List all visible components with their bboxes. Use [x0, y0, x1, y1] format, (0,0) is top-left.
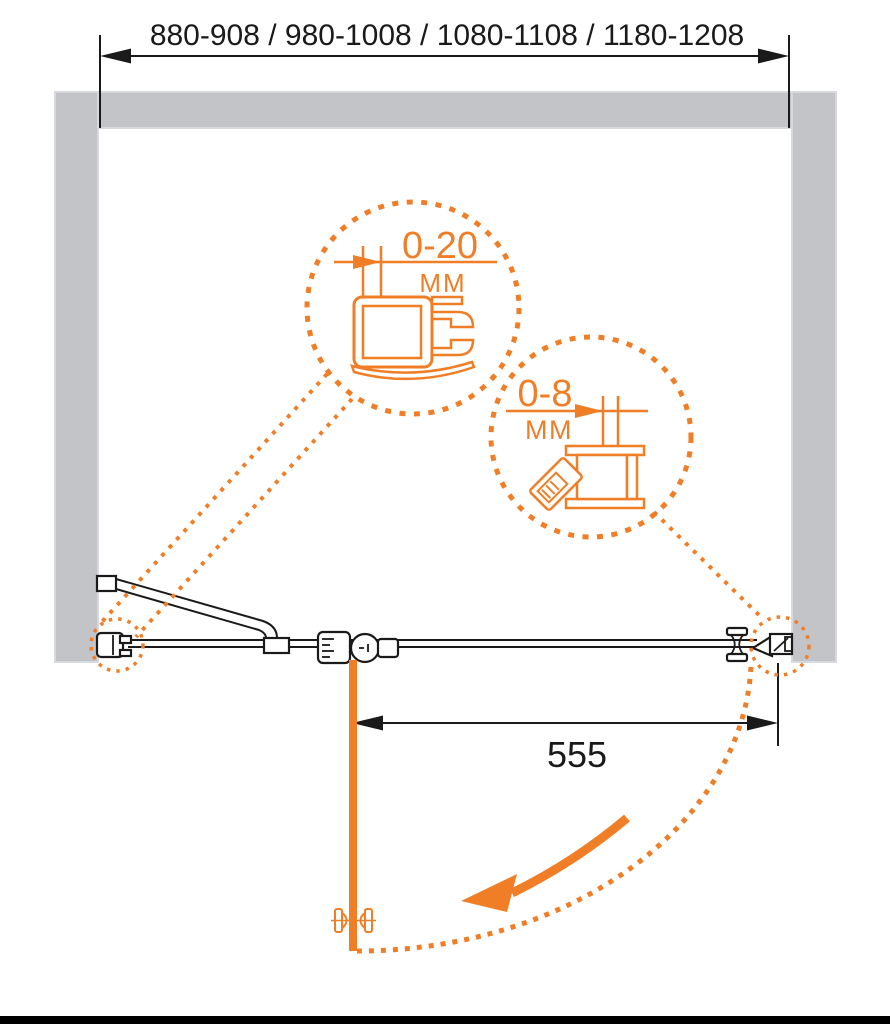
- door-open-leaf: [349, 660, 357, 951]
- support-bar-wall-mount: [97, 576, 116, 591]
- swing-arrow-head: [461, 874, 517, 912]
- detail-wall-profile-drawing: [352, 297, 474, 379]
- pivot-hinge-glass-clamp: [378, 639, 398, 657]
- installation-diagram: 880-908 / 980-1008 / 1080-1108 / 1180-12…: [0, 0, 890, 1024]
- wall-top: [55, 92, 836, 128]
- pivot-hinge-block: [318, 632, 350, 663]
- door-swing-arc: [357, 667, 751, 951]
- wall-profile-left: [97, 633, 131, 657]
- detail2-value: 0-8: [518, 373, 573, 415]
- detail1-value: 0-20: [402, 225, 478, 267]
- arrowhead-left-icon: [100, 49, 131, 64]
- pivot-hinge: [318, 632, 398, 663]
- handle-knob: [727, 628, 747, 661]
- pivot-hinge-rotor: [351, 634, 379, 662]
- knob-waist: [731, 635, 743, 654]
- profile-hook-bottom: [432, 340, 473, 355]
- detail-callout-links: [91, 374, 809, 675]
- profile-hook-top: [432, 312, 473, 327]
- profile-top-lip: [432, 297, 462, 304]
- detail-door-profile-drawing: [529, 446, 644, 511]
- support-bar-edge-bottom: [116, 589, 266, 638]
- wall-right: [792, 92, 836, 662]
- door-profile-right-wall: [627, 455, 637, 499]
- detail2-unit: MM: [525, 415, 573, 445]
- door-profile-rail-bottom: [566, 499, 644, 508]
- wall-profile-tab-bottom: [120, 650, 131, 656]
- wall-left: [55, 92, 98, 662]
- door-dim-arrow-right-icon: [747, 716, 778, 731]
- wall-bracket-right: [753, 634, 792, 656]
- wall-profile-tab-top: [120, 636, 131, 643]
- door-profile-frame: [577, 455, 627, 499]
- door-profile-rail-top: [566, 446, 644, 455]
- detail1-arrow-icon: [353, 255, 381, 269]
- support-bar-glass-clamp: [264, 638, 289, 653]
- detail1-unit: MM: [419, 268, 466, 298]
- detail-circle-door-profile: 0-8 MM: [491, 337, 691, 537]
- glass-panel: [128, 640, 757, 647]
- arrowhead-right-icon: [758, 49, 789, 64]
- callout-line-left-b: [136, 399, 352, 637]
- detail-circle-wall-profile: 0-20 MM: [307, 202, 519, 414]
- callout-line-left-a: [100, 374, 327, 624]
- door-open: [331, 660, 376, 951]
- door-width-label: 555: [547, 734, 607, 775]
- swing-direction-arrow-icon: [461, 818, 627, 912]
- door-width-dimension: 555: [352, 663, 778, 775]
- profile-inner: [363, 306, 421, 358]
- knob-flange-top: [727, 628, 747, 635]
- detail2-arrow-icon: [575, 404, 603, 418]
- footer-bar: [0, 1016, 890, 1024]
- callout-line-right: [654, 512, 764, 620]
- overall-width-label: 880-908 / 980-1008 / 1080-1108 / 1180-12…: [150, 19, 744, 52]
- knob-flange-bottom: [727, 654, 747, 661]
